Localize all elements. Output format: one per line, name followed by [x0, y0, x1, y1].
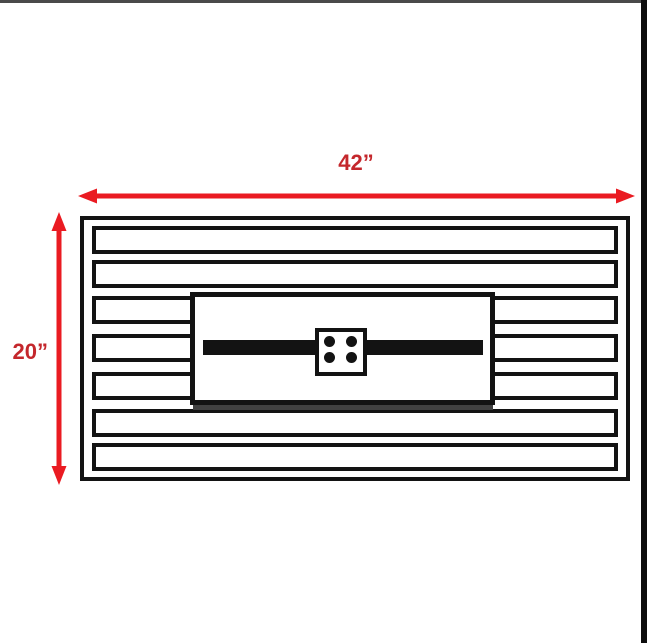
width-dimension-label: 42”	[296, 151, 416, 175]
arrowhead-right	[616, 189, 635, 204]
arrowhead-left	[78, 189, 97, 204]
slat	[92, 226, 618, 254]
width-dimension-arrow-icon	[78, 187, 635, 205]
bolt-dot	[324, 336, 335, 347]
slat	[92, 443, 618, 471]
bolt-dot	[346, 336, 357, 347]
screen-right-edge-bar	[641, 0, 647, 643]
screenshot-canvas: 42” 20”	[0, 0, 647, 643]
arrowhead-up	[52, 212, 67, 231]
burner-mounting-plate	[315, 328, 367, 376]
window-top-edge-bar	[0, 0, 647, 3]
slat	[92, 409, 618, 437]
bolt-dot	[324, 352, 335, 363]
slat	[92, 260, 618, 288]
arrowhead-down	[52, 466, 67, 485]
height-dimension-arrow-icon	[50, 212, 68, 485]
bolt-dot	[346, 352, 357, 363]
height-dimension-label: 20”	[2, 340, 48, 364]
